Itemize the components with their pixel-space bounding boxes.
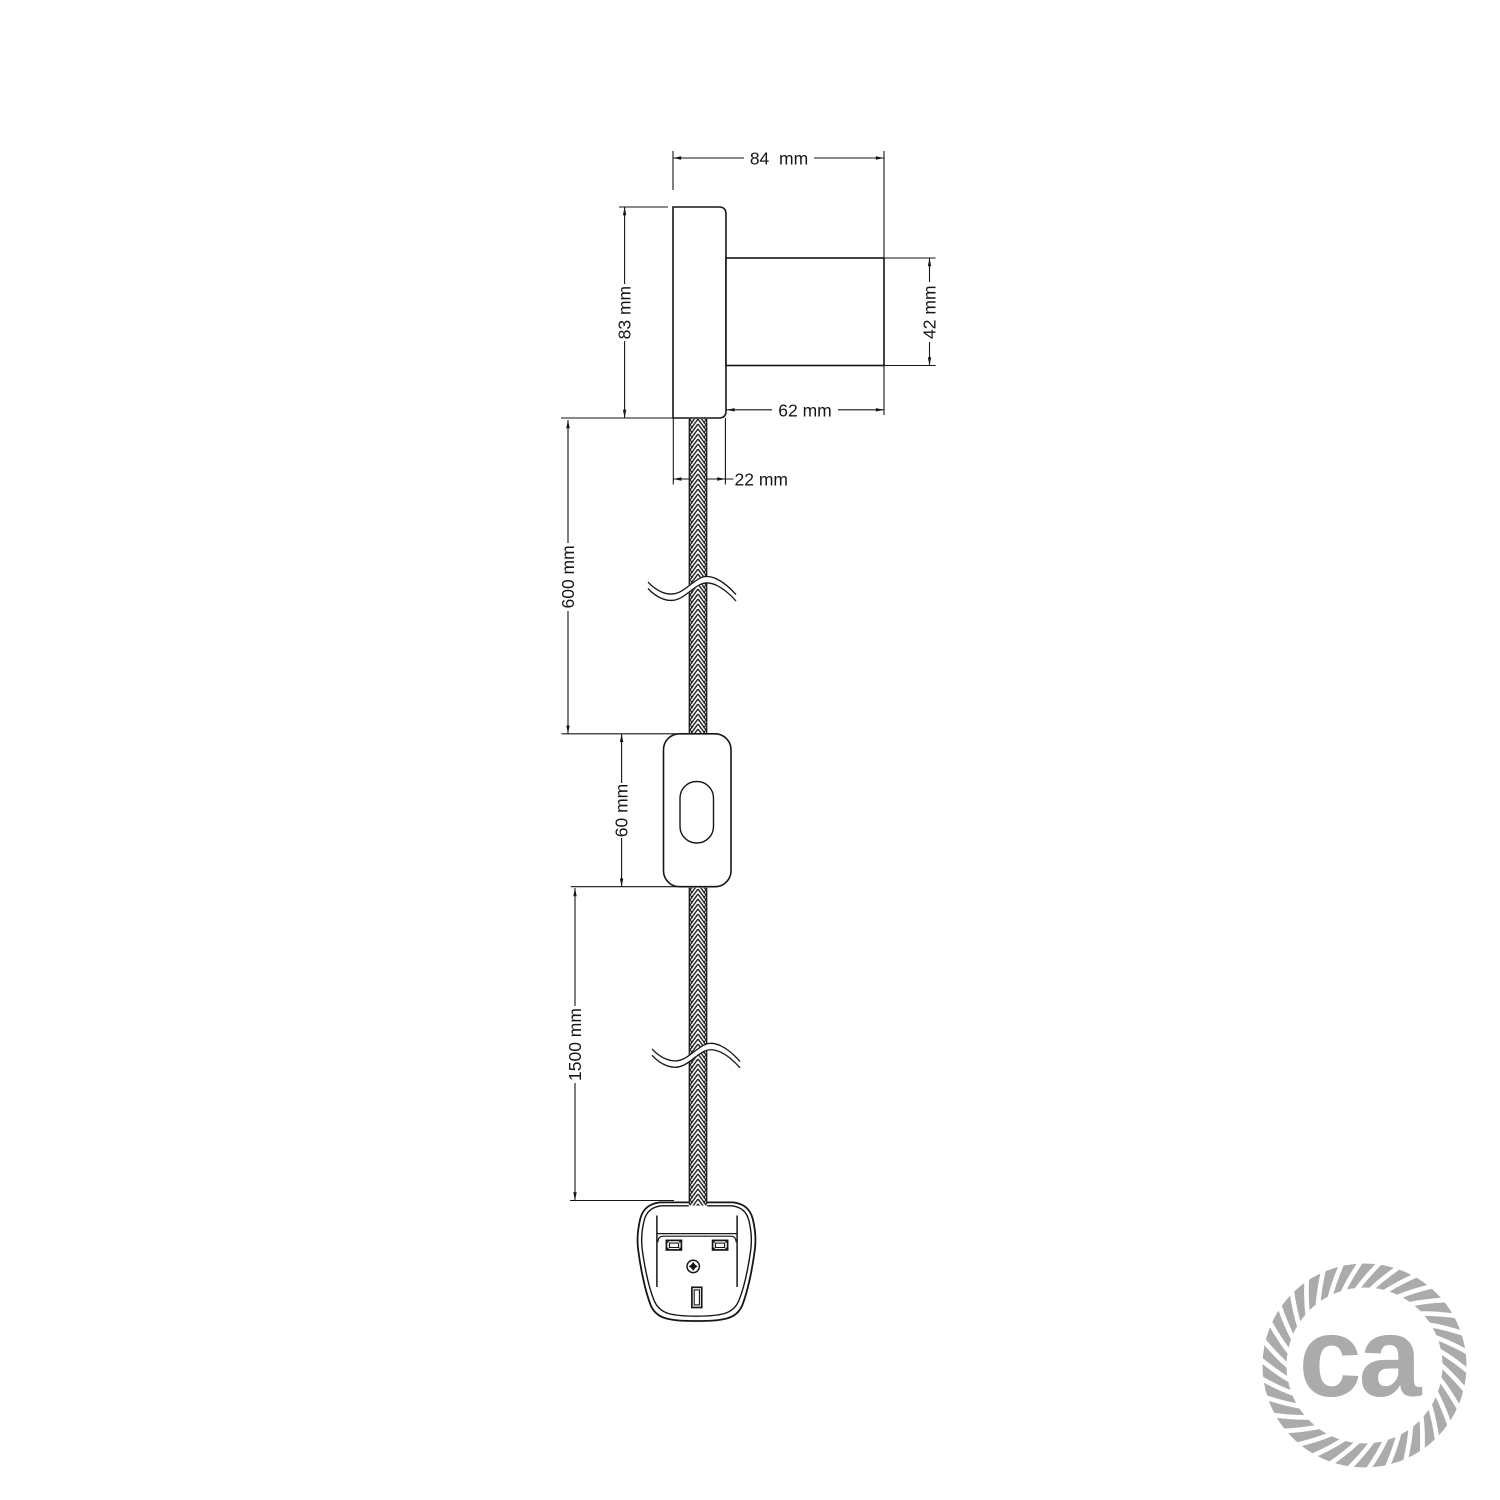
svg-text:60 mm: 60 mm: [612, 784, 632, 837]
svg-text:83 mm: 83 mm: [615, 286, 635, 339]
svg-text:84 mm: 84 mm: [750, 149, 808, 169]
svg-text:600 mm: 600 mm: [558, 545, 578, 608]
svg-text:42 mm: 42 mm: [920, 285, 940, 338]
svg-text:1500 mm: 1500 mm: [565, 1008, 585, 1081]
svg-text:22 mm: 22 mm: [735, 470, 788, 490]
svg-text:62 mm: 62 mm: [778, 400, 831, 420]
svg-text:ca: ca: [1299, 1294, 1423, 1420]
